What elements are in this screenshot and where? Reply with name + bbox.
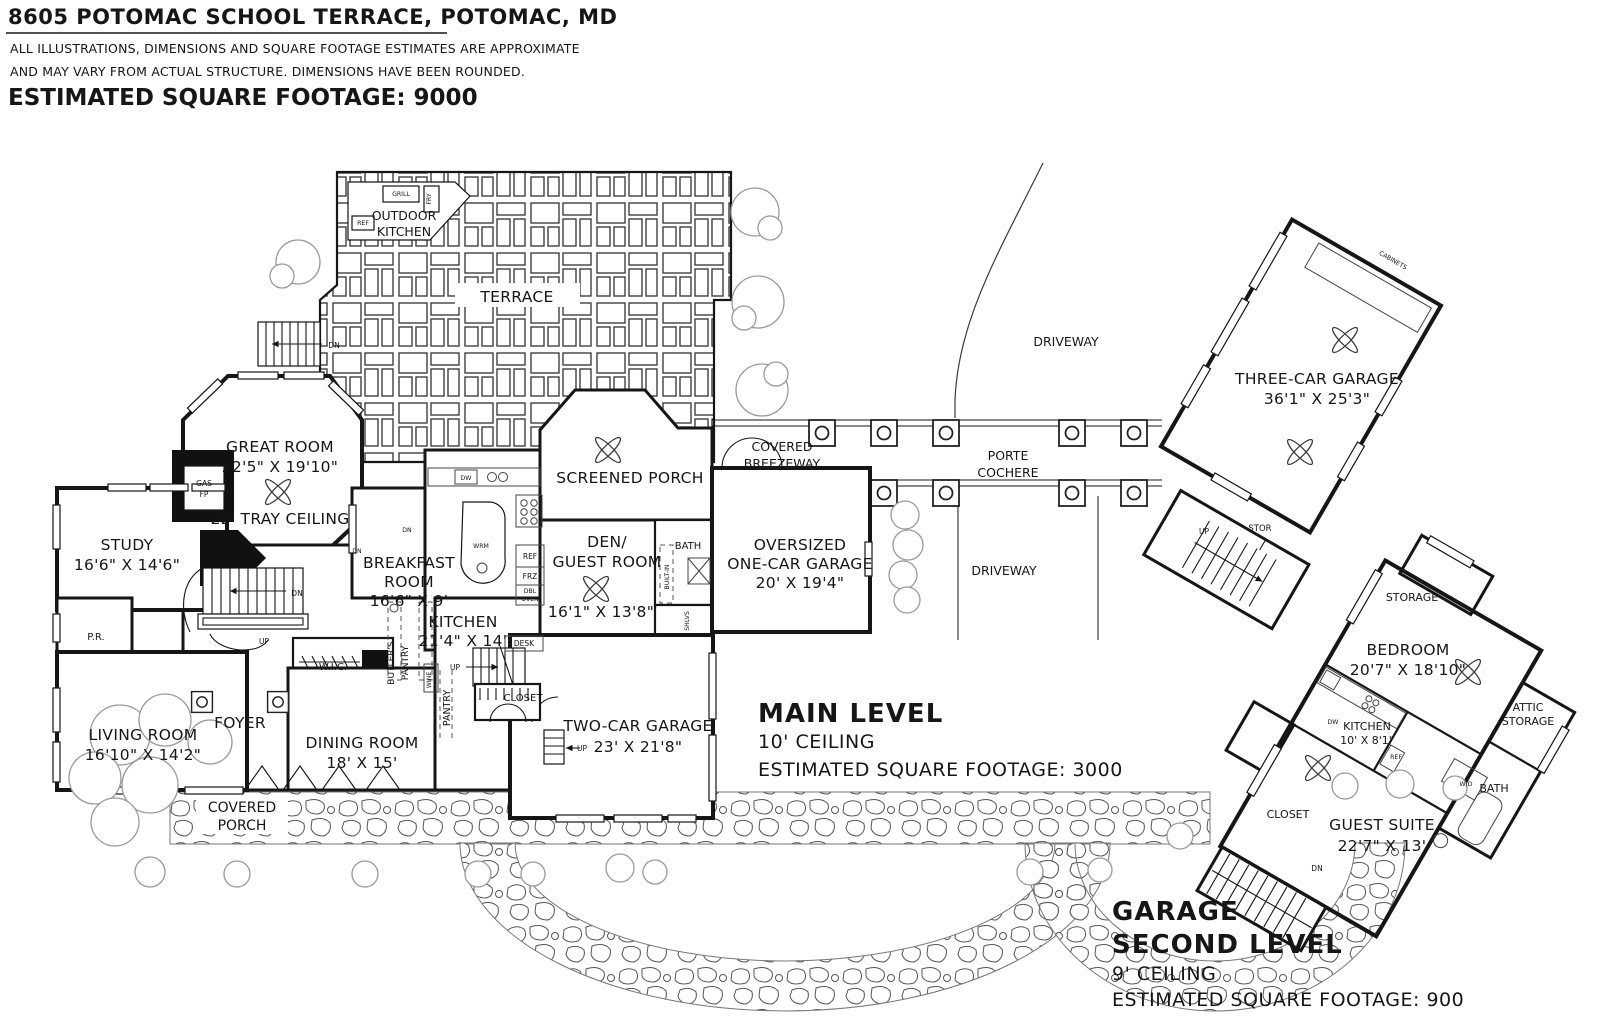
header: 8605 POTOMAC SCHOOL TERRACE, POTOMAC, MD… [6,5,617,111]
label-butlers-pantry-1: BUTLER'S [387,641,397,685]
label-ref: REF [523,552,537,561]
label-three-car-garage: THREE-CAR GARAGE [1234,370,1399,388]
label-great-room-dims: 22'5" X 19'10" [222,458,338,476]
label-door-dn-2: DN [352,548,362,555]
label-fp: FP [200,490,209,499]
label-three-car-garage-dims: 36'1" X 25'3" [1264,390,1370,408]
label-outdoor-ref: REF [357,220,369,227]
garage-level-footage: ESTIMATED SQUARE FOOTAGE: 900 [1112,989,1464,1011]
label-stor: STOR [1248,524,1271,534]
label-driveway-upper: DRIVEWAY [1033,334,1099,349]
label-study-dims: 16'6" X 14'6" [74,556,180,574]
garage-level-title-1: GARAGE [1112,897,1239,927]
label-covered-porch-1: COVERED [208,800,276,816]
label-stair-up: UP [450,663,460,672]
label-oversized-dims: 20' X 19'4" [756,574,845,592]
label-den-1: DEN/ [587,533,627,551]
label-attic-1: ATTIC [1513,701,1544,714]
label-wd: W/D [1460,781,1473,788]
label-wrm: WRM [473,543,489,550]
label-porte-1: PORTE [988,448,1029,463]
label-kitchen-dims: 21'4" X 14' [419,632,508,650]
label-2nd-bedroom-dims: 20'7" X 18'10" [1350,661,1466,679]
label-dining-room: DINING ROOM [305,734,418,752]
label-main-stair-up: UP [259,637,269,646]
label-main-stair-dn: DN [291,589,302,598]
label-2nd-dw: DW [1328,719,1339,726]
label-shlvs: SHLVS [684,611,691,631]
main-level-footage: ESTIMATED SQUARE FOOTAGE: 3000 [758,759,1123,781]
disclaimer-line2: AND MAY VARY FROM ACTUAL STRUCTURE. DIME… [10,64,525,79]
label-breakfast-2: ROOM [384,573,434,591]
powder-room-walls [57,598,132,658]
label-terrace-steps-dn: DN [328,341,339,350]
floor-plan-page: 8605 POTOMAC SCHOOL TERRACE, POTOMAC, MD… [0,0,1600,1017]
label-frz: FRZ [523,572,538,581]
label-breezeway-1: COVERED [751,439,812,454]
label-oversized-1: OVERSIZED [754,536,847,554]
label-pantry: PANTRY [442,690,453,727]
label-oversized-2: ONE-CAR GARAGE [727,555,872,573]
disclaimer-line1: ALL ILLUSTRATIONS, DIMENSIONS AND SQUARE… [10,41,580,56]
label-breakfast-dims: 16'6" X 9' [370,592,449,610]
label-dw: DW [461,475,472,482]
label-kitchen: KITCHEN [428,613,497,631]
label-grill: GRILL [392,191,410,198]
label-dining-room-dims: 18' X 15' [326,754,397,772]
label-2nd-ref: REF [1390,754,1402,761]
label-2nd-bedroom: BEDROOM [1366,641,1449,659]
porch-arc-left [460,843,1110,1011]
label-covered-porch-2: PORCH [218,818,267,834]
label-2nd-closet: CLOSET [1267,808,1310,821]
terrace-steps [258,322,322,366]
label-two-car-garage-dims: 23' X 21'8" [594,738,683,756]
main-level-ceiling: 10' CEILING [758,731,875,753]
label-wic: W.I.C. [319,662,347,673]
label-2nd-bath: BATH [1479,782,1508,795]
label-door-dn-1: DN [402,527,412,534]
label-living-room: LIVING ROOM [89,726,198,744]
bath-walls [655,520,712,605]
label-dbl: DBL [524,588,537,595]
page-title: 8605 POTOMAC SCHOOL TERRACE, POTOMAC, MD [8,5,617,29]
label-desk: DESK [514,639,535,648]
label-powder-room: P.R. [87,632,104,643]
label-attic-2: STORAGE [1502,715,1554,728]
label-living-room-dims: 16'10" X 14'2" [85,746,201,764]
label-oven: OVEN [521,596,539,603]
label-foyer: FOYER [214,714,266,732]
kitchen-staircase [466,646,525,688]
main-level-title: MAIN LEVEL [758,699,943,729]
label-closet: CLOSET [504,693,544,704]
label-bath: BATH [675,541,702,552]
label-breezeway-2: BREEZEWAY [744,456,821,471]
label-den-dims: 16'1" X 13'8" [548,603,654,621]
label-outdoor-kitchen-2: KITCHEN [377,224,431,239]
label-outdoor-kitchen-1: OUTDOOR [372,208,437,223]
label-screened-porch: SCREENED PORCH [556,469,704,487]
label-study: STUDY [101,536,154,554]
label-driveway-lower: DRIVEWAY [971,563,1037,578]
label-porte-2: COCHERE [977,465,1038,480]
label-cabinets: CABINETS [1378,250,1408,272]
label-guest-suite-dims: 22'7" X 13' [1338,837,1427,855]
label-breakfast-1: BREAKFAST [363,554,455,572]
label-garage-steps-up: UP [577,744,587,753]
label-gas: GAS [196,479,212,488]
label-tray-ceiling: 22' TRAY CEILING [210,510,349,528]
label-guest-suite: GUEST SUITE [1329,816,1435,834]
label-2nd-stairs-dn: DN [1311,864,1322,873]
label-2nd-storage: STORAGE [1386,591,1438,604]
garage-level-title-2: SECOND LEVEL [1112,930,1343,960]
garage-level-ceiling: 9' CEILING [1112,963,1216,985]
label-wine: WINE [426,672,433,689]
label-vestibule-up: UP [1199,527,1209,536]
floor-plan-drawing: 8605 POTOMAC SCHOOL TERRACE, POTOMAC, MD… [0,0,1600,1017]
label-2nd-kitchen: KITCHEN [1343,720,1391,733]
label-butlers-pantry-2: PANTRY [401,645,411,680]
label-fry: FRY [426,193,433,204]
label-two-car-garage: TWO-CAR GARAGE [562,717,712,735]
label-great-room: GREAT ROOM [226,438,334,456]
label-built-in: BUILT-IN [664,564,671,589]
label-2nd-kitchen-dims: 10' X 8'1" [1340,734,1394,747]
label-terrace: TERRACE [479,288,553,306]
label-den-2: GUEST ROOM [553,553,662,571]
total-square-footage: ESTIMATED SQUARE FOOTAGE: 9000 [8,85,478,111]
